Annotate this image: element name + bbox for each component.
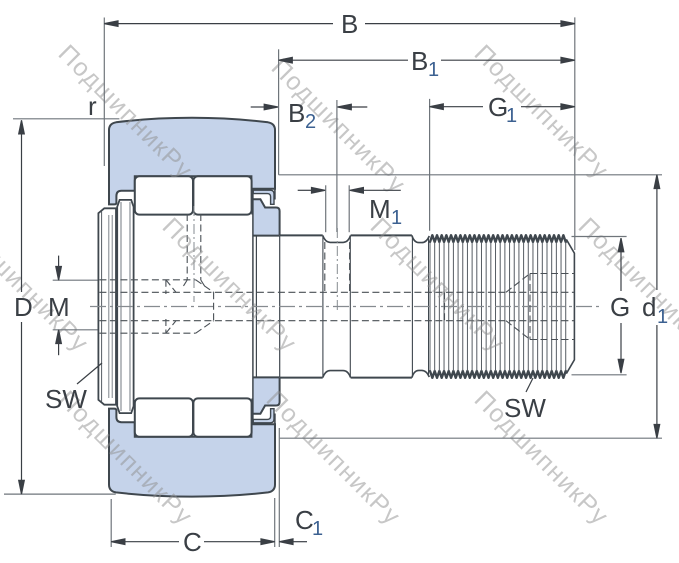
svg-text:B: B xyxy=(411,46,428,76)
svg-text:D: D xyxy=(14,292,33,322)
svg-text:d: d xyxy=(642,292,656,322)
svg-text:1: 1 xyxy=(428,59,439,81)
svg-text:1: 1 xyxy=(506,105,517,127)
svg-text:C: C xyxy=(183,527,202,557)
svg-text:ПодшипникРу: ПодшипникРу xyxy=(0,212,94,358)
svg-text:M: M xyxy=(48,292,70,322)
svg-text:G: G xyxy=(610,292,630,322)
svg-text:M: M xyxy=(369,194,391,224)
svg-text:1: 1 xyxy=(391,207,402,229)
svg-text:ПодшипникРу: ПодшипникРу xyxy=(573,212,679,358)
svg-text:SW: SW xyxy=(45,384,87,414)
svg-text:B: B xyxy=(341,9,358,39)
svg-text:1: 1 xyxy=(657,306,668,328)
svg-text:1: 1 xyxy=(312,518,323,540)
svg-text:SW: SW xyxy=(504,393,546,423)
svg-text:2: 2 xyxy=(305,111,316,133)
svg-text:r: r xyxy=(88,91,97,121)
svg-text:B: B xyxy=(288,98,305,128)
svg-text:C: C xyxy=(295,505,314,535)
svg-text:ПодшипникРу: ПодшипникРу xyxy=(261,385,407,531)
